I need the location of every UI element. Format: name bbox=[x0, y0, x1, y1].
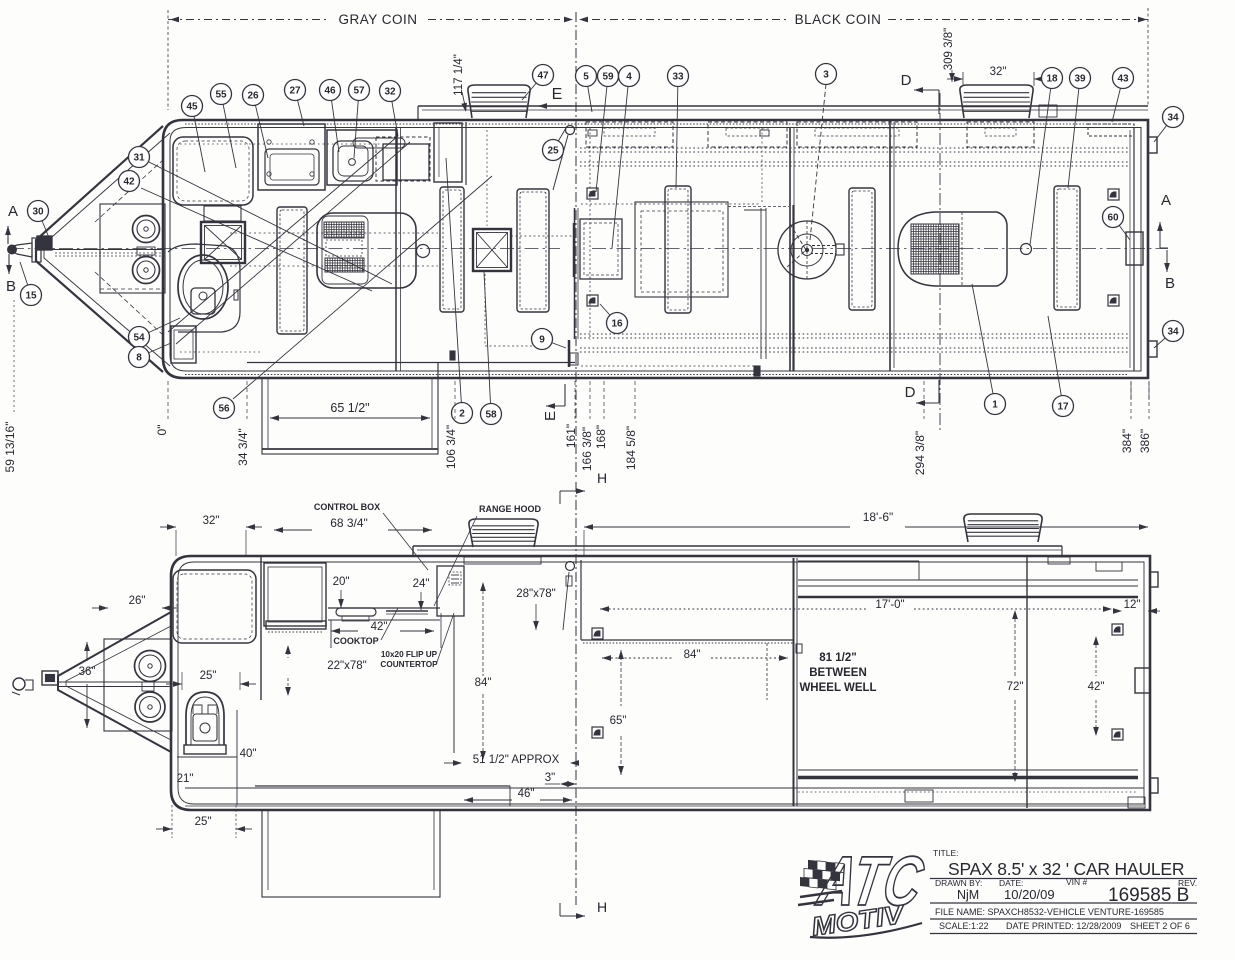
svg-text:WHEEL WELL: WHEEL WELL bbox=[799, 682, 876, 694]
svg-text:68 3/4": 68 3/4" bbox=[330, 516, 368, 530]
svg-text:46": 46" bbox=[518, 788, 535, 800]
svg-text:10x20 FLIP UP: 10x20 FLIP UP bbox=[381, 650, 438, 659]
svg-text:117 1/4": 117 1/4" bbox=[453, 54, 465, 96]
svg-text:59: 59 bbox=[602, 71, 614, 82]
svg-text:54: 54 bbox=[133, 332, 145, 343]
svg-text:2: 2 bbox=[459, 408, 465, 419]
svg-text:B: B bbox=[6, 278, 16, 295]
svg-text:65": 65" bbox=[610, 715, 627, 727]
svg-text:COUNTERTOP: COUNTERTOP bbox=[380, 660, 438, 669]
svg-text:RANGE HOOD: RANGE HOOD bbox=[479, 504, 542, 514]
svg-text:32": 32" bbox=[990, 66, 1007, 78]
svg-text:20": 20" bbox=[333, 576, 350, 588]
svg-text:21": 21" bbox=[177, 773, 194, 785]
svg-text:4: 4 bbox=[626, 71, 632, 82]
svg-text:42": 42" bbox=[1088, 681, 1105, 693]
svg-text:43: 43 bbox=[1117, 73, 1129, 84]
svg-text:169585 B: 169585 B bbox=[1108, 885, 1189, 906]
svg-text:34: 34 bbox=[1167, 112, 1179, 123]
svg-text:NjM: NjM bbox=[957, 888, 979, 902]
svg-text:81 1/2": 81 1/2" bbox=[819, 652, 856, 664]
svg-text:18'-6": 18'-6" bbox=[863, 510, 894, 524]
svg-text:42: 42 bbox=[123, 176, 135, 187]
svg-text:A: A bbox=[8, 203, 18, 220]
svg-text:36": 36" bbox=[79, 666, 96, 678]
svg-text:FILE NAME: SPAXCH8532-VEHICLE: FILE NAME: SPAXCH8532-VEHICLE VENTURE-16… bbox=[935, 907, 1164, 917]
svg-text:384": 384" bbox=[1120, 429, 1134, 453]
svg-text:45: 45 bbox=[186, 101, 198, 112]
svg-text:CONTROL BOX: CONTROL BOX bbox=[314, 502, 380, 512]
svg-text:B: B bbox=[1165, 275, 1175, 292]
svg-text:DRAWN BY:: DRAWN BY: bbox=[935, 878, 982, 888]
svg-text:47: 47 bbox=[537, 70, 549, 81]
svg-text:22"x78": 22"x78" bbox=[327, 660, 367, 672]
svg-text:46: 46 bbox=[324, 85, 336, 96]
svg-text:3": 3" bbox=[545, 772, 555, 784]
svg-text:0": 0" bbox=[155, 425, 169, 436]
svg-text:3: 3 bbox=[823, 69, 829, 80]
svg-text:VIN #: VIN # bbox=[1066, 877, 1088, 887]
svg-text:GRAY COIN: GRAY COIN bbox=[338, 12, 417, 27]
svg-text:34: 34 bbox=[1167, 326, 1179, 337]
svg-text:16: 16 bbox=[611, 318, 623, 329]
svg-text:60: 60 bbox=[1107, 212, 1119, 223]
svg-text:161": 161" bbox=[564, 424, 578, 448]
svg-text:SHEET 2 OF 6: SHEET 2 OF 6 bbox=[1130, 921, 1190, 931]
svg-text:8: 8 bbox=[136, 352, 142, 363]
svg-text:H: H bbox=[597, 470, 607, 486]
svg-text:30: 30 bbox=[32, 206, 44, 217]
svg-text:COOKTOP: COOKTOP bbox=[333, 636, 378, 646]
svg-text:1: 1 bbox=[992, 399, 998, 410]
svg-text:25": 25" bbox=[200, 670, 217, 682]
svg-text:84": 84" bbox=[475, 677, 492, 689]
svg-text:386": 386" bbox=[1138, 429, 1152, 453]
svg-text:18: 18 bbox=[1046, 73, 1058, 84]
svg-text:39: 39 bbox=[1074, 73, 1086, 84]
svg-text:42": 42" bbox=[371, 621, 388, 633]
svg-text:12": 12" bbox=[1124, 599, 1141, 611]
svg-text:184 5/8": 184 5/8" bbox=[624, 426, 638, 470]
svg-text:72": 72" bbox=[1007, 681, 1024, 693]
svg-text:31: 31 bbox=[133, 152, 145, 163]
svg-text:25": 25" bbox=[195, 816, 212, 828]
svg-text:9: 9 bbox=[539, 334, 545, 345]
svg-text:58: 58 bbox=[485, 409, 497, 420]
svg-text:D: D bbox=[901, 72, 912, 89]
svg-text:BLACK COIN: BLACK COIN bbox=[795, 12, 882, 27]
svg-text:57: 57 bbox=[353, 85, 365, 96]
svg-text:34 3/4": 34 3/4" bbox=[236, 428, 250, 466]
svg-text:27: 27 bbox=[289, 85, 301, 96]
svg-text:17'-0": 17'-0" bbox=[875, 599, 904, 611]
svg-text:DATE PRINTED: 12/28/2009: DATE PRINTED: 12/28/2009 bbox=[1006, 921, 1121, 931]
svg-text:26": 26" bbox=[129, 595, 146, 607]
svg-text:84": 84" bbox=[684, 649, 701, 661]
svg-text:SPAX 8.5' x 32 ' CAR HAULER: SPAX 8.5' x 32 ' CAR HAULER bbox=[948, 859, 1184, 879]
svg-text:59 13/16": 59 13/16" bbox=[3, 422, 17, 473]
svg-text:32: 32 bbox=[384, 86, 396, 97]
svg-text:D: D bbox=[905, 384, 916, 401]
svg-text:294 3/8": 294 3/8" bbox=[913, 431, 927, 475]
svg-text:10/20/09: 10/20/09 bbox=[1004, 887, 1055, 902]
svg-text:17: 17 bbox=[1057, 401, 1069, 412]
svg-text:E: E bbox=[542, 411, 559, 421]
svg-text:106 3/4": 106 3/4" bbox=[444, 425, 458, 469]
svg-text:BETWEEN: BETWEEN bbox=[809, 667, 867, 679]
svg-text:168": 168" bbox=[594, 425, 608, 449]
svg-text:55: 55 bbox=[215, 89, 227, 100]
svg-text:56: 56 bbox=[218, 403, 230, 414]
svg-text:32": 32" bbox=[203, 515, 220, 527]
svg-text:25: 25 bbox=[547, 145, 559, 156]
svg-text:51 1/2" APPROX: 51 1/2" APPROX bbox=[473, 754, 560, 766]
svg-text:166 3/8": 166 3/8" bbox=[580, 427, 594, 471]
svg-text:A: A bbox=[1161, 192, 1171, 209]
svg-text:15: 15 bbox=[25, 290, 37, 301]
svg-text:26: 26 bbox=[247, 90, 259, 101]
svg-text:40": 40" bbox=[240, 748, 257, 760]
svg-text:33: 33 bbox=[672, 71, 684, 82]
svg-text:24": 24" bbox=[413, 578, 430, 590]
svg-text:SCALE:1:22: SCALE:1:22 bbox=[939, 921, 989, 931]
svg-text:65 1/2": 65 1/2" bbox=[330, 401, 369, 415]
svg-text:5: 5 bbox=[583, 71, 589, 82]
svg-text:E: E bbox=[552, 86, 563, 103]
svg-text:H: H bbox=[597, 899, 607, 915]
svg-text:TITLE:: TITLE: bbox=[933, 848, 959, 858]
svg-text:309 3/8": 309 3/8" bbox=[943, 28, 955, 70]
svg-text:28"x78": 28"x78" bbox=[516, 588, 556, 600]
